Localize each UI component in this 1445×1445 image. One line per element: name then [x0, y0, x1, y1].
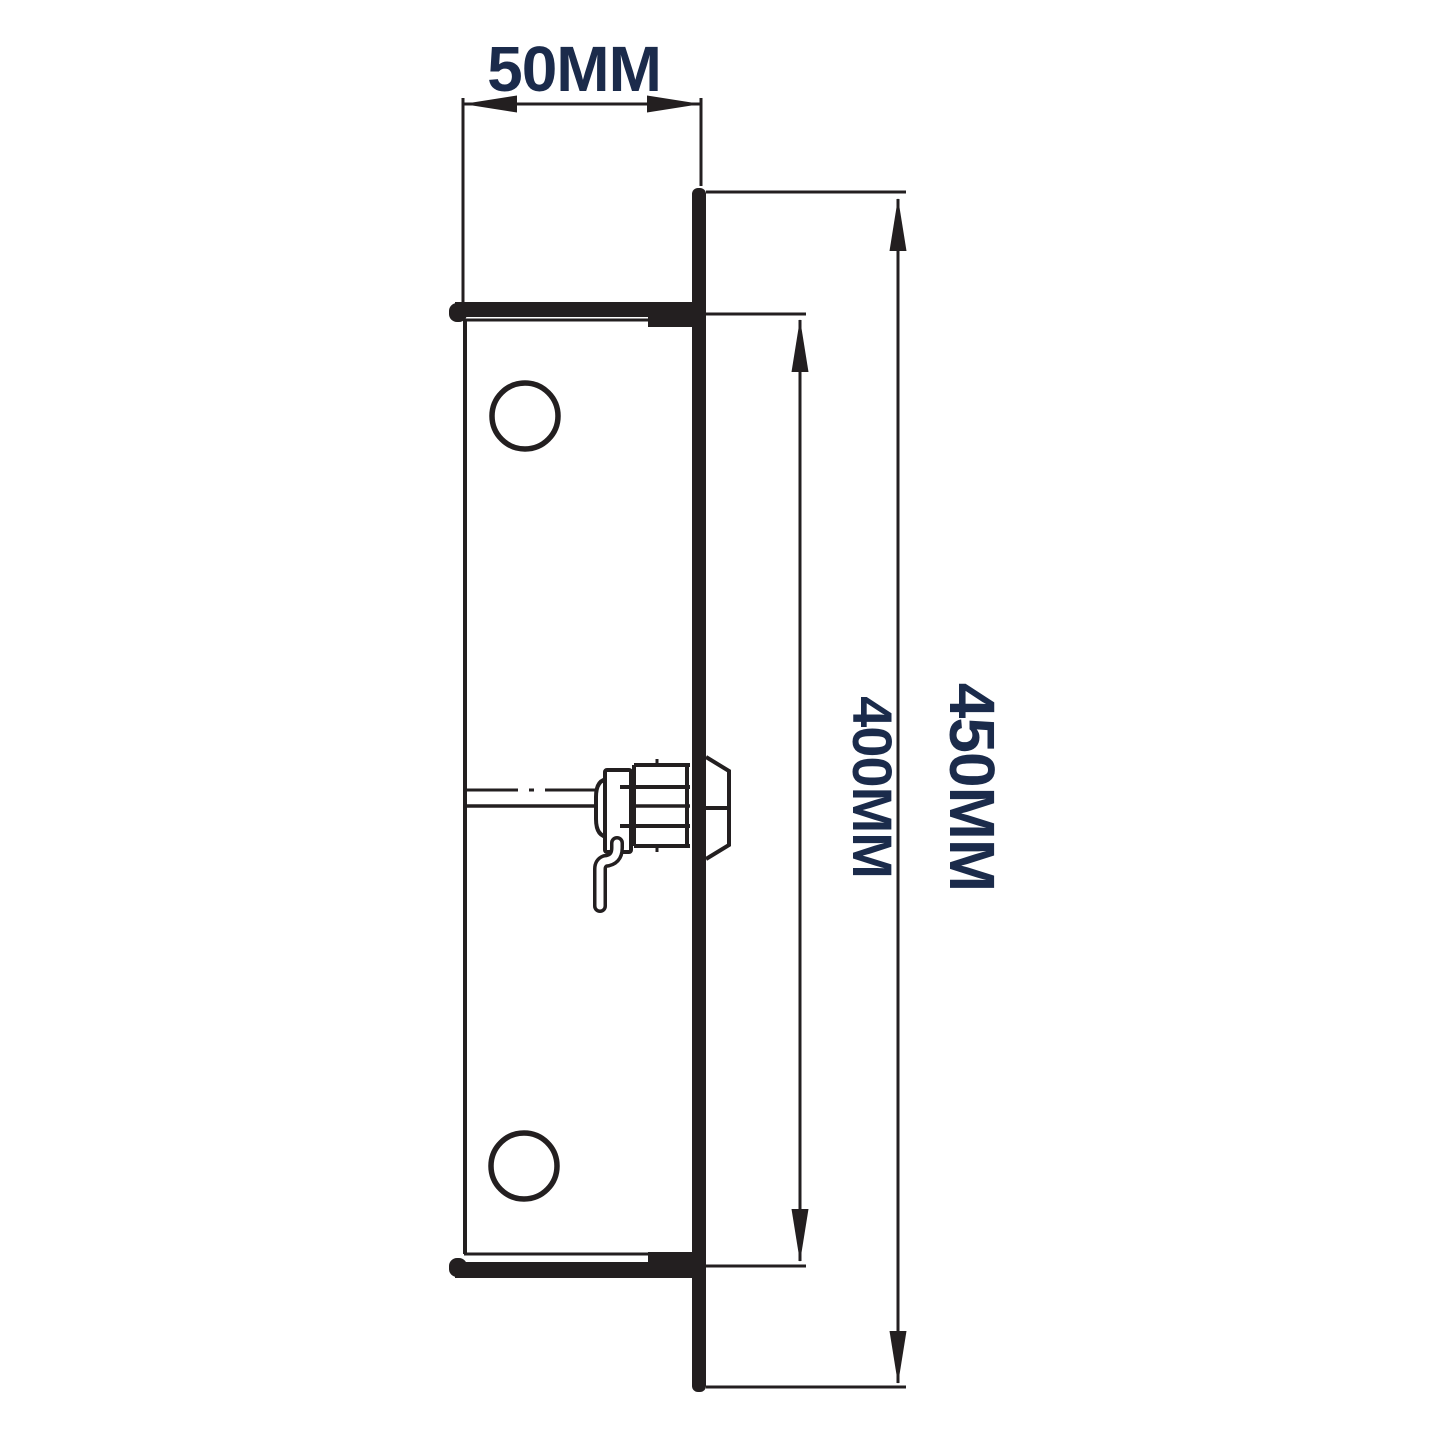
faceplate-flange [692, 188, 706, 1392]
bottom-bar [455, 1262, 692, 1278]
arrowhead-inner-bottom-icon [792, 1209, 809, 1262]
dimension-width: 50MM [463, 33, 701, 302]
dimension-label-inner-height: 400MM [841, 696, 904, 878]
arrowhead-overall-top-icon [890, 198, 907, 251]
dimension-inner-height: 400MM [706, 314, 904, 1266]
dimension-label-width: 50MM [487, 33, 661, 105]
screw-hole-top [492, 383, 558, 449]
arrowhead-inner-top-icon [792, 319, 809, 372]
bottom-step [648, 1252, 692, 1263]
arrowhead-width-right-icon [647, 96, 701, 113]
cam-lock-assembly [463, 757, 729, 906]
bezel-nut [706, 757, 729, 859]
technical-drawing: 50MM [0, 0, 1445, 1445]
top-step [648, 316, 692, 327]
arrowhead-overall-bottom-icon [890, 1331, 907, 1384]
lock-side-view-diagram: 50MM [0, 0, 1445, 1445]
dimension-label-overall-height: 450MM [936, 683, 1008, 891]
top-bar [455, 302, 692, 317]
screw-hole-bottom [491, 1133, 557, 1199]
